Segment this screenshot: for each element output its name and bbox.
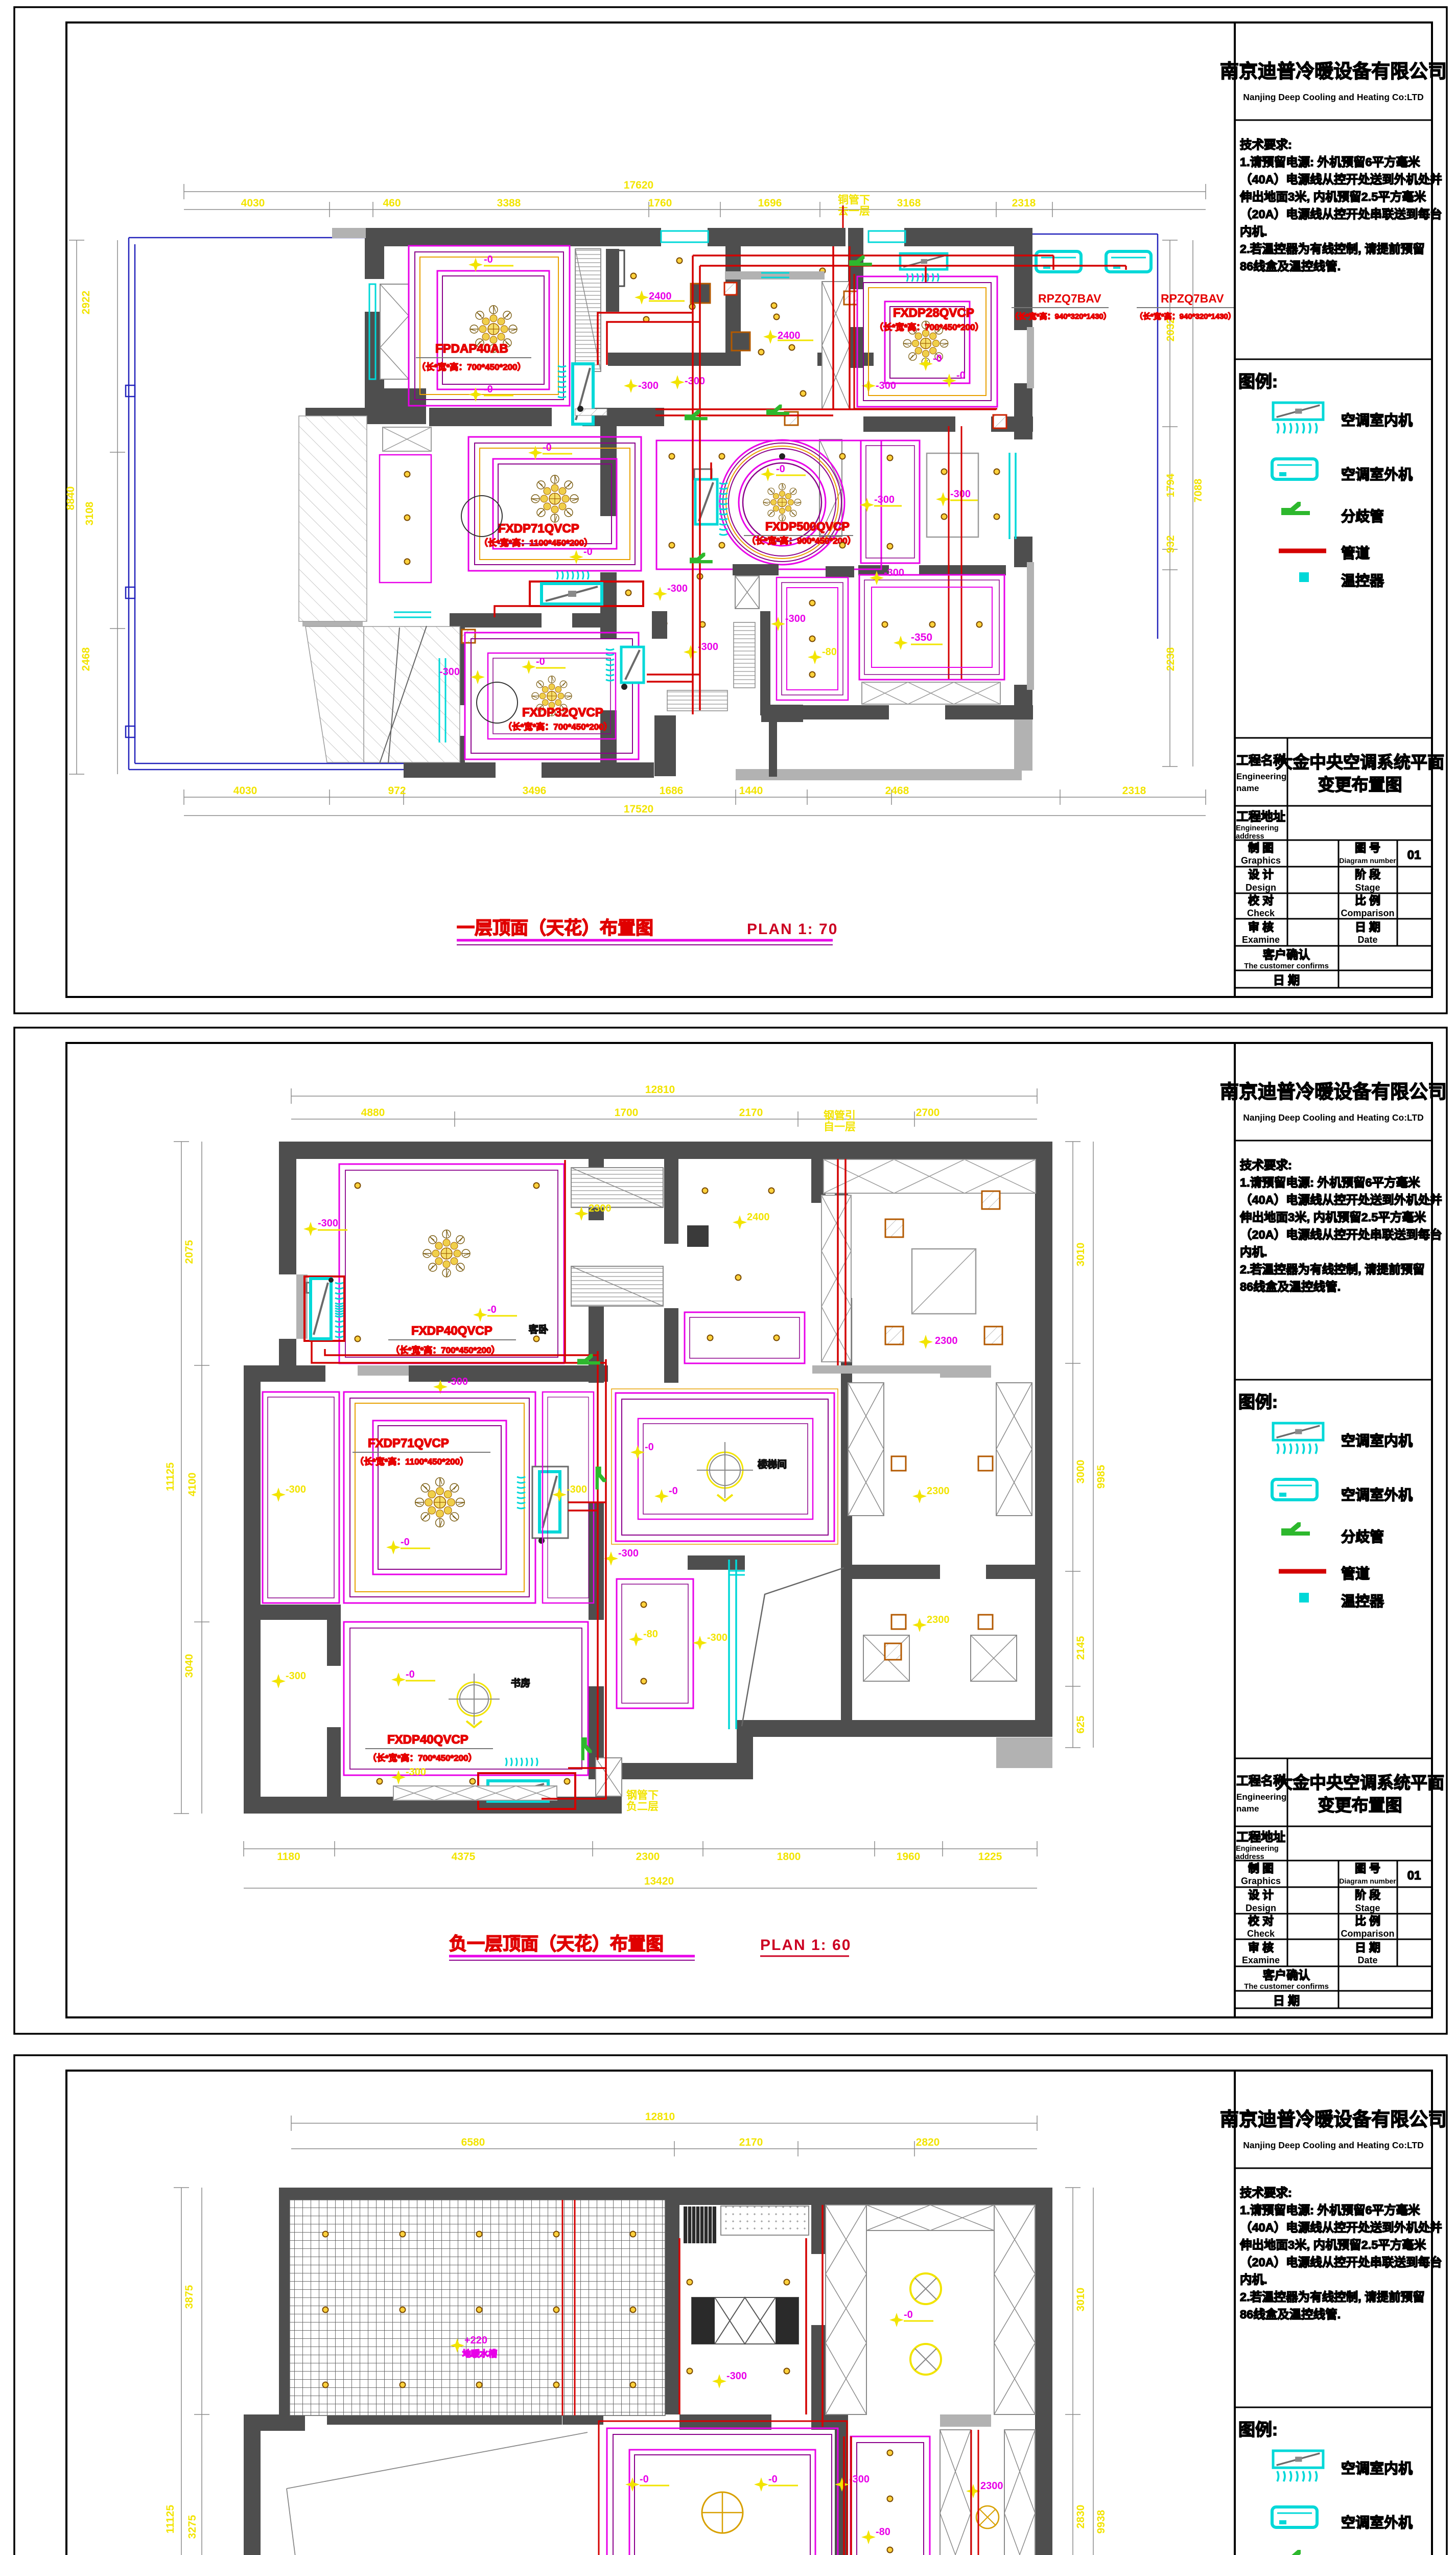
svg-text:17520: 17520 [624, 803, 653, 815]
svg-text:2300: 2300 [980, 2480, 1003, 2492]
svg-text:1960: 1960 [897, 1851, 921, 1863]
svg-text:+220: +220 [464, 2335, 487, 2346]
svg-text:-300: -300 [318, 1218, 338, 1229]
svg-text:FXDP500QVCP: FXDP500QVCP [765, 520, 850, 533]
svg-text:-300: -300 [638, 380, 659, 391]
svg-text:（长*宽*高：700*450*200）: （长*宽*高：700*450*200） [503, 722, 613, 732]
svg-text:1225: 1225 [978, 1851, 1002, 1863]
svg-text:-300: -300 [950, 489, 971, 500]
svg-text:2170: 2170 [739, 1107, 763, 1119]
svg-text:-300: -300 [785, 613, 806, 624]
svg-text:RPZQ7BAV: RPZQ7BAV [1038, 292, 1101, 305]
svg-text:2468: 2468 [885, 785, 909, 797]
svg-text:2318: 2318 [1012, 197, 1036, 209]
svg-text:1700: 1700 [615, 1107, 639, 1119]
svg-text:6580: 6580 [461, 2136, 485, 2148]
svg-text:负一层顶面（天花）布置图: 负一层顶面（天花）布置图 [449, 1934, 664, 1954]
svg-text:-0: -0 [406, 1669, 415, 1680]
svg-text:（长*宽*高：700*450*200）: （长*宽*高：700*450*200） [417, 362, 526, 372]
svg-text:-300: -300 [448, 1376, 468, 1387]
svg-text:-300: -300 [726, 2371, 747, 2382]
svg-text:-80: -80 [822, 646, 837, 658]
svg-text:-300: -300 [286, 1670, 306, 1682]
svg-text:-300: -300 [707, 1632, 727, 1643]
svg-text:-300: -300 [618, 1548, 639, 1559]
svg-text:972: 972 [388, 785, 406, 797]
svg-text:8840: 8840 [65, 486, 77, 510]
svg-text:-0: -0 [543, 442, 552, 453]
svg-text:1180: 1180 [277, 1851, 300, 1863]
svg-text:4375: 4375 [452, 1851, 476, 1863]
svg-text:3275: 3275 [186, 2515, 198, 2539]
svg-text:2820: 2820 [916, 2136, 940, 2148]
svg-text:3108: 3108 [84, 501, 96, 525]
svg-text:FXDP28QVCP: FXDP28QVCP [893, 306, 974, 320]
svg-text:3040: 3040 [183, 1654, 195, 1678]
svg-text:2300: 2300 [935, 1335, 958, 1346]
svg-text:-0: -0 [776, 463, 785, 475]
svg-text:客卧: 客卧 [529, 1323, 548, 1335]
svg-text:2830: 2830 [1075, 2505, 1087, 2529]
svg-text:12810: 12810 [645, 1084, 675, 1096]
svg-text:-0: -0 [768, 2474, 778, 2485]
svg-text:钢管下: 钢管下 [626, 1789, 659, 1801]
svg-text:-0: -0 [484, 384, 493, 395]
svg-text:PLAN 1: 60: PLAN 1: 60 [760, 1937, 851, 1954]
svg-text:RPZQ7BAV: RPZQ7BAV [1161, 292, 1224, 305]
svg-text:-300: -300 [667, 583, 688, 594]
svg-text:FXDP71QVCP: FXDP71QVCP [368, 1436, 449, 1450]
svg-text:-0: -0 [933, 353, 942, 364]
svg-text:FXDP40QVCP: FXDP40QVCP [411, 1324, 492, 1338]
svg-text:12810: 12810 [645, 2111, 675, 2123]
svg-text:-0: -0 [956, 370, 966, 381]
svg-text:-80: -80 [876, 2526, 890, 2538]
svg-text:（长*宽*高：700*450*200）: （长*宽*高：700*450*200） [368, 1753, 477, 1763]
svg-text:-300: -300 [849, 2474, 870, 2485]
svg-text:地暖水槽: 地暖水槽 [462, 2349, 497, 2359]
svg-text:-0: -0 [536, 656, 545, 667]
svg-text:（长*宽*高：1100*450*200）: （长*宽*高：1100*450*200） [479, 538, 593, 548]
svg-text:11125: 11125 [165, 2505, 176, 2534]
svg-text:-300: -300 [874, 494, 895, 505]
svg-text:4030: 4030 [241, 197, 265, 209]
svg-text:-0: -0 [583, 546, 593, 558]
svg-text:-0: -0 [401, 1537, 410, 1548]
svg-text:2238: 2238 [1165, 647, 1177, 671]
svg-text:13420: 13420 [644, 1875, 674, 1887]
svg-text:-300: -300 [685, 376, 705, 387]
svg-text:3000: 3000 [1075, 1460, 1087, 1484]
svg-text:FXDP71QVCP: FXDP71QVCP [498, 522, 579, 536]
svg-text:-0: -0 [904, 2309, 913, 2320]
svg-text:-300: -300 [406, 1767, 426, 1778]
svg-text:2075: 2075 [183, 1240, 195, 1264]
svg-text:-350: -350 [911, 632, 932, 643]
svg-text:铜管下: 铜管下 [838, 194, 870, 206]
svg-text:3875: 3875 [183, 2285, 195, 2309]
svg-text:1760: 1760 [648, 197, 672, 209]
svg-text:FXDP32QVCP: FXDP32QVCP [522, 706, 603, 719]
svg-text:2318: 2318 [1122, 785, 1146, 797]
svg-text:9985: 9985 [1095, 1465, 1107, 1489]
svg-text:1696: 1696 [758, 197, 782, 209]
svg-text:-0: -0 [640, 2474, 649, 2485]
svg-text:（长*宽*高：700*450*200）: （长*宽*高：700*450*200） [875, 322, 984, 332]
svg-text:2300: 2300 [927, 1614, 950, 1625]
svg-text:-80: -80 [643, 1629, 658, 1640]
svg-text:2468: 2468 [80, 647, 92, 671]
svg-text:1440: 1440 [739, 785, 763, 797]
svg-text:9938: 9938 [1095, 2510, 1107, 2534]
svg-text:3168: 3168 [897, 197, 921, 209]
svg-text:2300: 2300 [589, 1203, 612, 1214]
svg-text:FPDAP40AB: FPDAP40AB [435, 342, 508, 356]
svg-text:17620: 17620 [624, 179, 653, 191]
svg-text:-300: -300 [567, 1484, 587, 1495]
svg-text:3010: 3010 [1075, 1243, 1087, 1267]
svg-text:4100: 4100 [186, 1473, 198, 1497]
svg-text:-300: -300 [884, 567, 904, 578]
svg-text:一层顶面（天花）布置图: 一层顶面（天花）布置图 [457, 918, 653, 938]
svg-text:-0: -0 [645, 1442, 654, 1453]
svg-text:2700: 2700 [916, 1107, 940, 1119]
svg-text:3010: 3010 [1075, 2288, 1087, 2312]
svg-text:-300: -300 [876, 380, 896, 391]
svg-text:-300: -300 [439, 666, 460, 678]
svg-text:2400: 2400 [747, 1212, 770, 1223]
svg-text:书房: 书房 [511, 1677, 530, 1689]
svg-text:-0: -0 [487, 1304, 497, 1315]
svg-text:PLAN 1: 70: PLAN 1: 70 [747, 921, 838, 938]
svg-text:625: 625 [1075, 1715, 1087, 1733]
svg-text:2300: 2300 [927, 1485, 950, 1497]
svg-text:11125: 11125 [165, 1462, 176, 1491]
svg-text:2032: 2032 [1165, 318, 1177, 342]
svg-text:-300: -300 [286, 1484, 306, 1495]
svg-text:（长*宽*高：940*320*1430）: （长*宽*高：940*320*1430） [1011, 312, 1111, 321]
svg-text:负二层: 负二层 [626, 1801, 659, 1813]
svg-text:4880: 4880 [361, 1107, 385, 1119]
svg-text:自一层: 自一层 [824, 1121, 856, 1133]
svg-text:-0: -0 [484, 254, 493, 265]
svg-text:楼梯间: 楼梯间 [758, 1458, 787, 1470]
svg-text:-300: -300 [698, 641, 718, 653]
svg-text:1794: 1794 [1165, 473, 1177, 497]
svg-text:（长*宽*高：700*450*200）: （长*宽*高：700*450*200） [391, 1345, 500, 1355]
svg-text:-0: -0 [669, 1485, 678, 1497]
svg-text:1800: 1800 [777, 1851, 801, 1863]
svg-text:（长*宽*高：940*320*1430）: （长*宽*高：940*320*1430） [1135, 312, 1236, 321]
svg-text:2145: 2145 [1075, 1636, 1087, 1660]
svg-text:3388: 3388 [497, 197, 521, 209]
svg-text:4030: 4030 [233, 785, 257, 797]
svg-text:（长*宽*高：1100*450*200）: （长*宽*高：1100*450*200） [355, 1456, 468, 1467]
svg-text:460: 460 [383, 197, 401, 209]
svg-text:3496: 3496 [523, 785, 547, 797]
svg-text:1686: 1686 [660, 785, 684, 797]
svg-text:钢管引: 钢管引 [824, 1109, 856, 1122]
svg-text:FXDP40QVCP: FXDP40QVCP [387, 1733, 468, 1747]
svg-text:7088: 7088 [1192, 478, 1204, 502]
svg-text:932: 932 [1165, 535, 1177, 553]
svg-text:2300: 2300 [636, 1851, 660, 1863]
svg-text:2170: 2170 [739, 2136, 763, 2148]
svg-text:2922: 2922 [80, 291, 92, 315]
